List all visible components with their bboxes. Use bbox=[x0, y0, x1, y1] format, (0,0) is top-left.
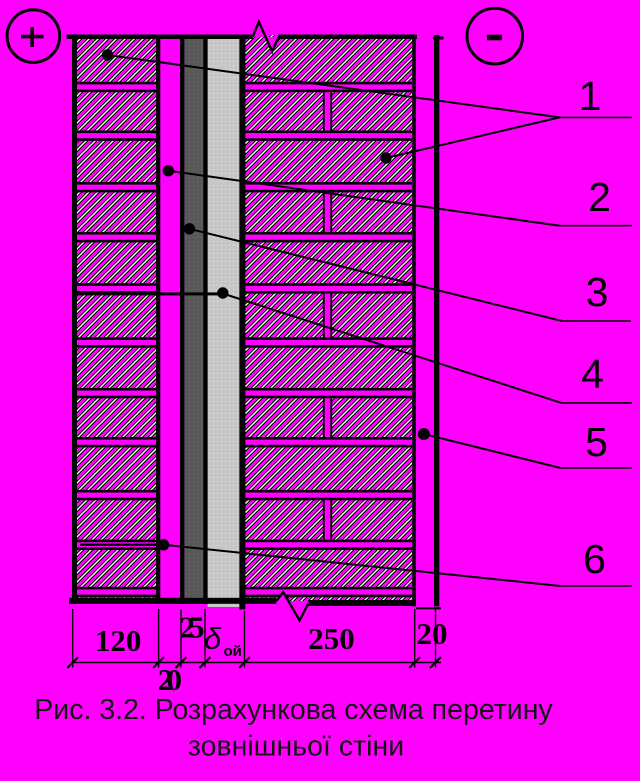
svg-text:0: 0 bbox=[167, 662, 183, 697]
svg-text:δ: δ bbox=[204, 621, 222, 656]
svg-text:зовнішньої стіни: зовнішньої стіни bbox=[188, 731, 404, 763]
svg-text:5: 5 bbox=[585, 419, 608, 465]
svg-text:4: 4 bbox=[581, 351, 604, 397]
svg-text:2: 2 bbox=[588, 174, 611, 220]
svg-text:20: 20 bbox=[417, 616, 448, 651]
svg-text:250: 250 bbox=[308, 621, 355, 656]
svg-text:Рис. 3.2. Розрахункова схема п: Рис. 3.2. Розрахункова схема перетину bbox=[34, 694, 553, 726]
svg-text:ой: ой bbox=[224, 643, 242, 660]
svg-text:3: 3 bbox=[586, 269, 609, 315]
svg-text:1: 1 bbox=[579, 73, 602, 119]
svg-text:120: 120 bbox=[95, 623, 142, 658]
svg-text:5: 5 bbox=[189, 610, 205, 645]
svg-text:6: 6 bbox=[583, 536, 606, 582]
